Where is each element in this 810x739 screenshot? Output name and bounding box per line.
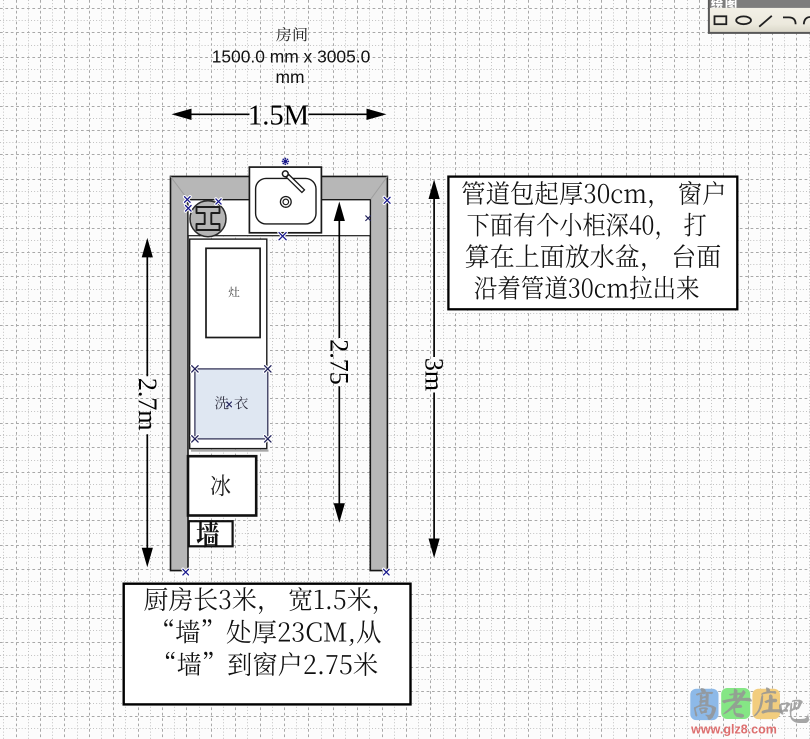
svg-text:2.7m: 2.7m — [133, 378, 162, 431]
svg-text:1500.0 mm x 3005.0: 1500.0 mm x 3005.0 — [212, 47, 371, 67]
svg-text:3m: 3m — [419, 358, 448, 391]
svg-text:1.5M: 1.5M — [248, 100, 309, 131]
svg-text:mm: mm — [276, 67, 305, 87]
svg-text:2.75: 2.75 — [325, 339, 354, 385]
svg-text:www.glz8.com: www.glz8.com — [690, 723, 777, 737]
